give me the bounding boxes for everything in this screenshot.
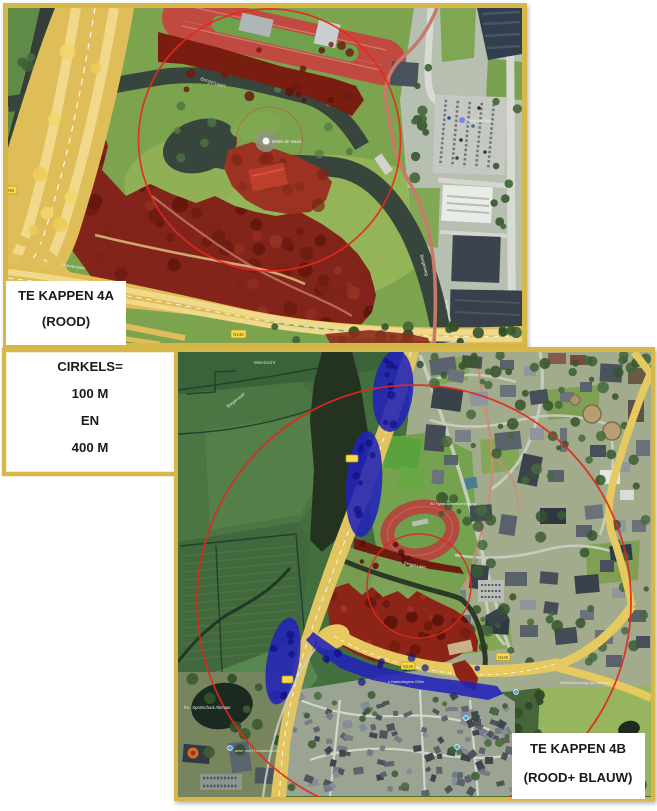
svg-text:s Kadedragers Gilde: s Kadedragers Gilde [388, 679, 425, 684]
svg-text:(ROOD+ BLAUW): (ROOD+ BLAUW) [524, 770, 633, 785]
svg-text:100 M: 100 M [72, 386, 109, 401]
svg-text:Geestmolenbrug van Alkmaar: Geestmolenbrug van Alkmaar [560, 681, 611, 685]
svg-text:amer van t Hondsbossche: amer van t Hondsbossche [235, 749, 279, 753]
svg-text:TE KAPPEN 4A: TE KAPPEN 4A [18, 288, 114, 303]
svg-text:TE KAPPEN 4B: TE KAPPEN 4B [530, 741, 626, 756]
svg-text:Molen de Viaan: Molen de Viaan [272, 139, 302, 144]
svg-text:N9: N9 [8, 188, 14, 193]
svg-text:Singelgarage: Singelgarage [467, 118, 492, 123]
svg-text:Meiertocht: Meiertocht [254, 360, 276, 365]
svg-text:N245: N245 [233, 332, 244, 337]
svg-text:Fa . Sportschool Alkmaar: Fa . Sportschool Alkmaar [184, 705, 231, 710]
svg-text:CIRKELS=: CIRKELS= [57, 359, 123, 374]
svg-text:N245: N245 [498, 655, 509, 660]
svg-text:400 M: 400 M [72, 440, 109, 455]
svg-text:AV Hylas atletiekvereniging: AV Hylas atletiekvereniging [430, 502, 476, 506]
svg-text:N245: N245 [403, 664, 414, 669]
svg-text:(ROOD): (ROOD) [42, 314, 90, 329]
svg-text:EN: EN [81, 413, 99, 428]
